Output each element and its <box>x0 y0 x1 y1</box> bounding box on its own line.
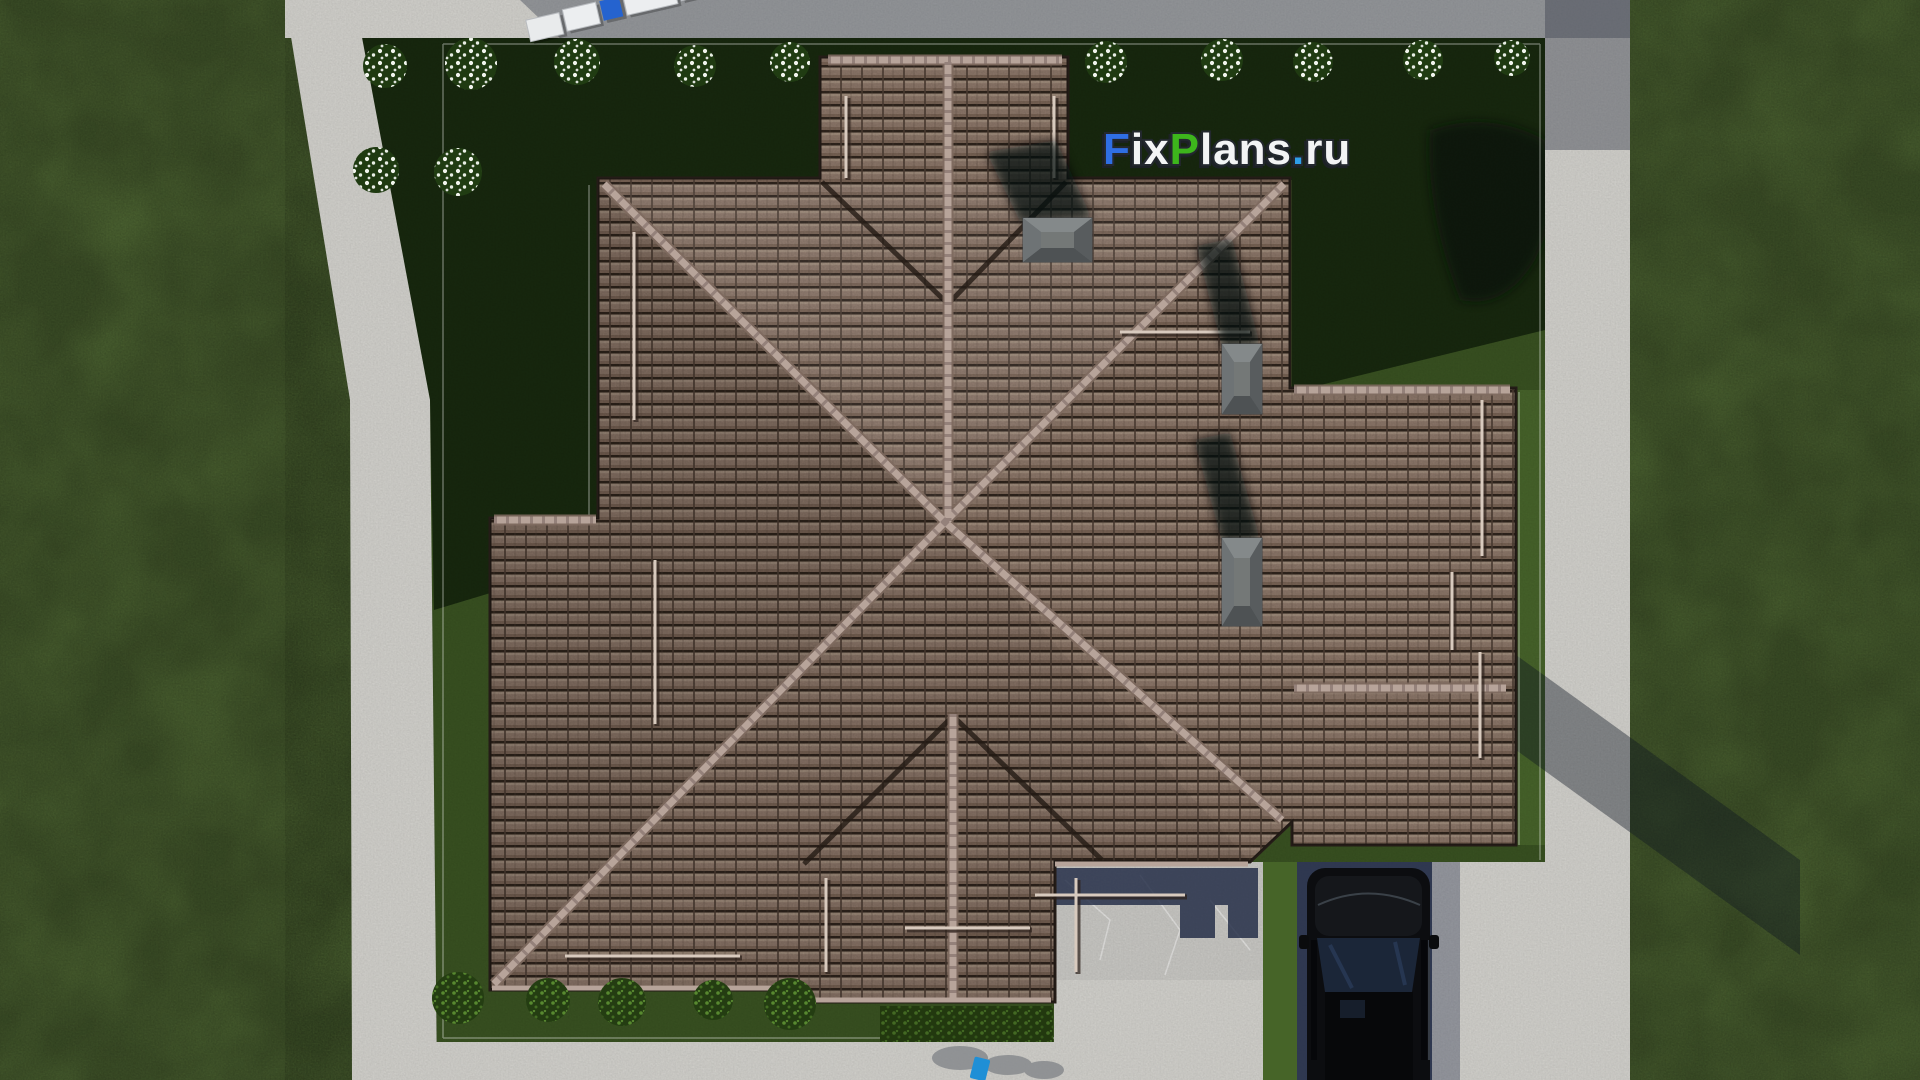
green-bush <box>598 978 646 1026</box>
flowering-bush <box>353 147 399 193</box>
watermark-part-lans: lans <box>1200 125 1292 174</box>
flowering-bush <box>445 38 497 90</box>
flowering-bush <box>770 42 810 82</box>
sidewalk-shadow-top <box>1545 0 1630 150</box>
watermark-part-ix: ix <box>1131 125 1170 174</box>
flowering-bush <box>1085 41 1127 83</box>
car-mirror-left <box>1299 935 1309 949</box>
car-mirror-right <box>1429 935 1439 949</box>
hedge-texture <box>880 1006 1053 1042</box>
green-bush <box>693 980 733 1020</box>
flowering-bush <box>554 39 600 85</box>
watermark-part-f: F <box>1103 125 1131 174</box>
chimney-top <box>1023 218 1092 262</box>
watermark-text: FixPlans.ru <box>1103 125 1351 174</box>
green-bush <box>764 978 816 1030</box>
aerial-house-render: FixPlans.ru <box>0 0 1920 1080</box>
watermark-part-ru: ru <box>1305 125 1351 174</box>
car-shadow-soft <box>1432 862 1460 1080</box>
car-hood <box>1315 876 1422 936</box>
car-side-window-right <box>1421 940 1427 1060</box>
site-plan-svg: FixPlans.ru <box>0 0 1920 1080</box>
green-bush <box>526 978 570 1022</box>
car-roof <box>1325 992 1413 1080</box>
parked-car <box>1299 868 1439 1080</box>
chimney-middle <box>1222 344 1262 414</box>
flowering-bush <box>1201 39 1243 81</box>
flowering-bush <box>1403 40 1443 80</box>
green-bush <box>432 972 484 1024</box>
flowering-bush <box>363 44 407 88</box>
grass-strip-patio <box>1263 862 1297 1080</box>
flowering-bush <box>434 148 482 196</box>
chimney-lower <box>1222 538 1262 626</box>
watermark-part-p: P <box>1170 125 1200 174</box>
car-sunroof <box>1340 1000 1365 1018</box>
flowering-bush <box>1293 42 1333 82</box>
flowering-bush <box>674 45 716 87</box>
car-side-window-left <box>1311 940 1317 1060</box>
watermark-part-dot: . <box>1292 125 1305 174</box>
road-shadow <box>520 0 1630 38</box>
flowering-bush <box>1494 40 1530 76</box>
